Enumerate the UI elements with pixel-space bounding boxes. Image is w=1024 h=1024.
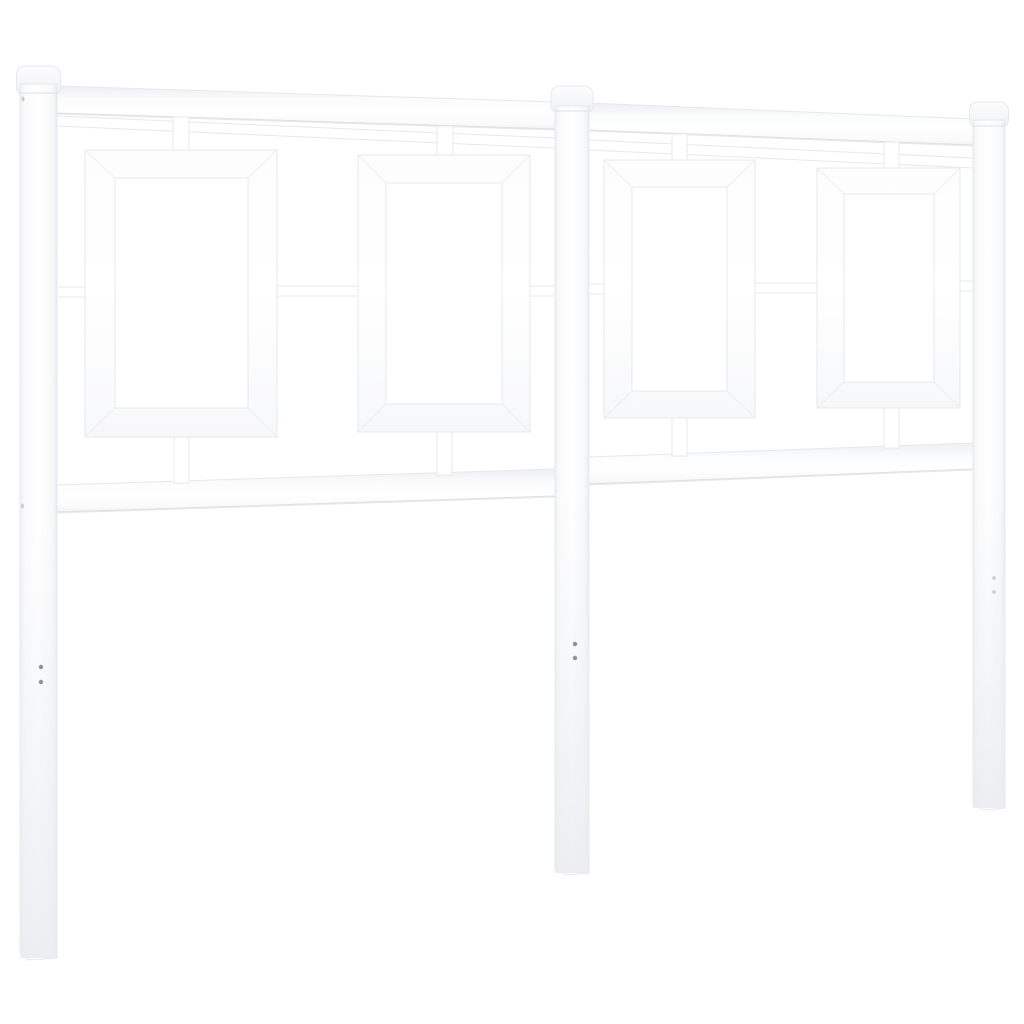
center-leg-screw-hole-upper — [573, 642, 577, 646]
right-leg-screw-hole-upper — [992, 576, 996, 580]
mid-connector-2 — [277, 286, 358, 296]
left-leg-shading — [20, 515, 57, 958]
mid-connector-6 — [960, 281, 973, 291]
mid-connector-5 — [755, 283, 817, 293]
right-leg-shading — [973, 471, 1005, 808]
mid-connector-4 — [589, 284, 604, 294]
top-stub-1 — [173, 117, 189, 153]
center-leg-screw-hole-lower — [573, 656, 577, 660]
left-leg-screw-hole-lower — [39, 680, 43, 684]
bottom-stub-3 — [672, 416, 687, 456]
bottom-stub-2 — [437, 430, 452, 475]
mid-connector-3 — [530, 286, 555, 296]
bottom-stub-1 — [174, 435, 189, 483]
headboard-photo: White metal headboard photographed on a … — [0, 0, 1024, 1024]
left-leg-screw-hole-upper — [39, 665, 43, 669]
bottom-stub-4 — [884, 406, 899, 448]
center-leg-shading — [555, 487, 589, 873]
left-post-side-hole-top — [22, 97, 25, 102]
mid-connector-1 — [57, 287, 85, 297]
left-post-side-hole-mid — [21, 504, 24, 509]
top-stub-2 — [437, 126, 453, 158]
product-photo-canvas: White metal headboard photographed on a … — [0, 0, 1024, 1024]
right-leg-screw-hole-lower — [992, 590, 996, 594]
